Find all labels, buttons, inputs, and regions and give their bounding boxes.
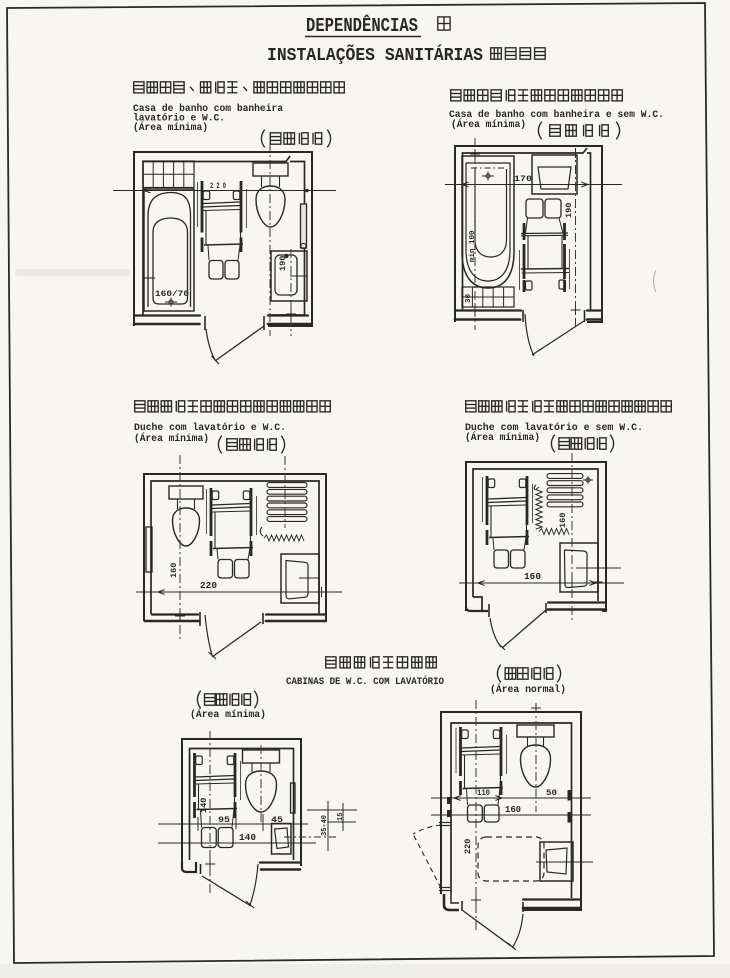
svg-text:220: 220: [200, 581, 217, 591]
svg-text:140: 140: [199, 798, 209, 813]
svg-text:190: 190: [564, 203, 574, 218]
svg-text:50: 50: [546, 788, 557, 798]
svg-text:(Área mínima): (Área mínima): [190, 709, 266, 720]
svg-text:190: 190: [278, 256, 288, 271]
svg-text:(Área mínima): (Área mínima): [451, 119, 526, 130]
svg-text:160: 160: [505, 805, 521, 815]
svg-text:30: 30: [465, 293, 473, 303]
svg-text:35-40: 35-40: [321, 815, 329, 836]
svg-text:(Área normal): (Área normal): [490, 684, 566, 695]
svg-text:160: 160: [558, 513, 568, 528]
svg-text:DEPENDÊNCIAS: DEPENDÊNCIAS: [306, 14, 418, 37]
svg-text:(Área mínima): (Área mínima): [134, 433, 209, 444]
svg-text:170: 170: [514, 174, 532, 184]
svg-text:(Área mínima): (Área mínima): [133, 122, 208, 133]
svg-text:(Área mínima): (Área mínima): [465, 432, 540, 443]
svg-text:CABINAS DE W.C. COM LAVATÓRIO: CABINAS DE W.C. COM LAVATÓRIO: [286, 674, 444, 688]
svg-text:160: 160: [524, 572, 541, 582]
svg-text:15: 15: [337, 813, 345, 821]
svg-text:110: 110: [477, 788, 490, 798]
svg-text:160: 160: [169, 563, 179, 578]
svg-text:160/70: 160/70: [155, 289, 189, 299]
svg-text:Duche com lavatório e W.C.: Duche com lavatório e W.C.: [134, 422, 286, 433]
svg-text:miη 100: miη 100: [469, 230, 477, 262]
svg-text:140: 140: [239, 833, 256, 843]
svg-text:INSTALAÇÕES SANITÁRIAS: INSTALAÇÕES SANITÁRIAS: [267, 44, 483, 66]
svg-text:220: 220: [463, 839, 473, 854]
svg-text:2 2 0: 2 2 0: [210, 181, 226, 191]
